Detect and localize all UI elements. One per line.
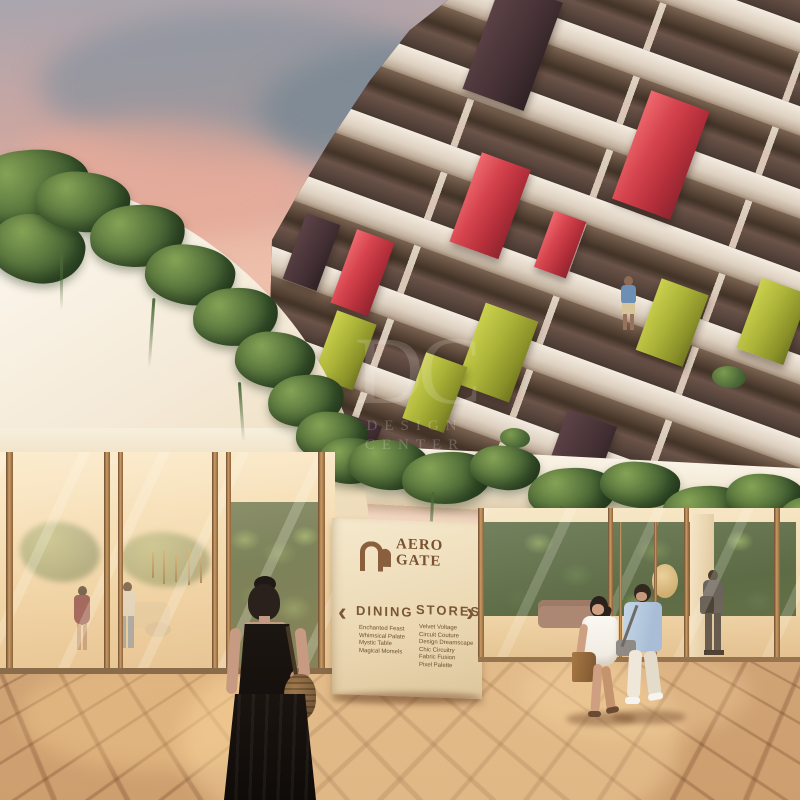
dining-list: Enchanted Feast Whimsical Palate Mystic …: [359, 625, 405, 657]
head-hair: [248, 584, 280, 620]
chevron-right-icon: ›: [466, 599, 475, 625]
brand-line-2: GATE: [396, 552, 443, 570]
brand-wordmark: AERO GATE: [396, 536, 443, 570]
legs: [623, 314, 627, 330]
balcony-plant: [712, 366, 746, 388]
leg-pants: [643, 650, 661, 696]
sneaker: [648, 692, 664, 701]
sign-wall-shadow: [332, 692, 482, 704]
storefront-mullion: [118, 452, 123, 674]
face: [636, 592, 647, 601]
face: [592, 604, 604, 615]
legs: [630, 314, 634, 330]
leg-pants: [627, 650, 642, 699]
blue-tshirt: [621, 285, 636, 304]
brand-line-1: AERO: [396, 536, 443, 554]
stores-item: Pixel Palette: [419, 662, 473, 671]
aero-gate-arch-logo-icon: [379, 549, 391, 567]
storefront-mullion: [684, 508, 689, 662]
person-blue-shirt: [612, 584, 674, 724]
arm: [226, 628, 242, 695]
dining-heading: DINING: [356, 603, 414, 620]
storefront-mullion: [6, 452, 13, 674]
balcony-man: [616, 276, 642, 334]
storefront-mullion: [318, 452, 325, 674]
foreground-woman-black-dress: [220, 576, 316, 800]
storefront-mullion: [212, 452, 218, 674]
sneaker: [625, 697, 640, 704]
stores-list: Velvet Voltage Circuit Couture Design Dr…: [419, 624, 473, 671]
storefront-mullion: [478, 508, 484, 662]
dress-skirt: [224, 694, 316, 800]
vine-tendril: [60, 250, 63, 310]
chevron-left-icon: ‹: [338, 598, 347, 624]
storefront-mullion: [104, 452, 110, 674]
aero-gate-sign-wall: AERO GATE ‹ DINING Enchanted Feast Whims…: [332, 518, 482, 699]
sandal: [588, 711, 601, 717]
dining-item: Magical Morsels: [359, 647, 405, 656]
storefront-mullion: [774, 508, 780, 662]
courtyard-rendering: AERO GATE ‹ DINING Enchanted Feast Whims…: [0, 0, 800, 800]
